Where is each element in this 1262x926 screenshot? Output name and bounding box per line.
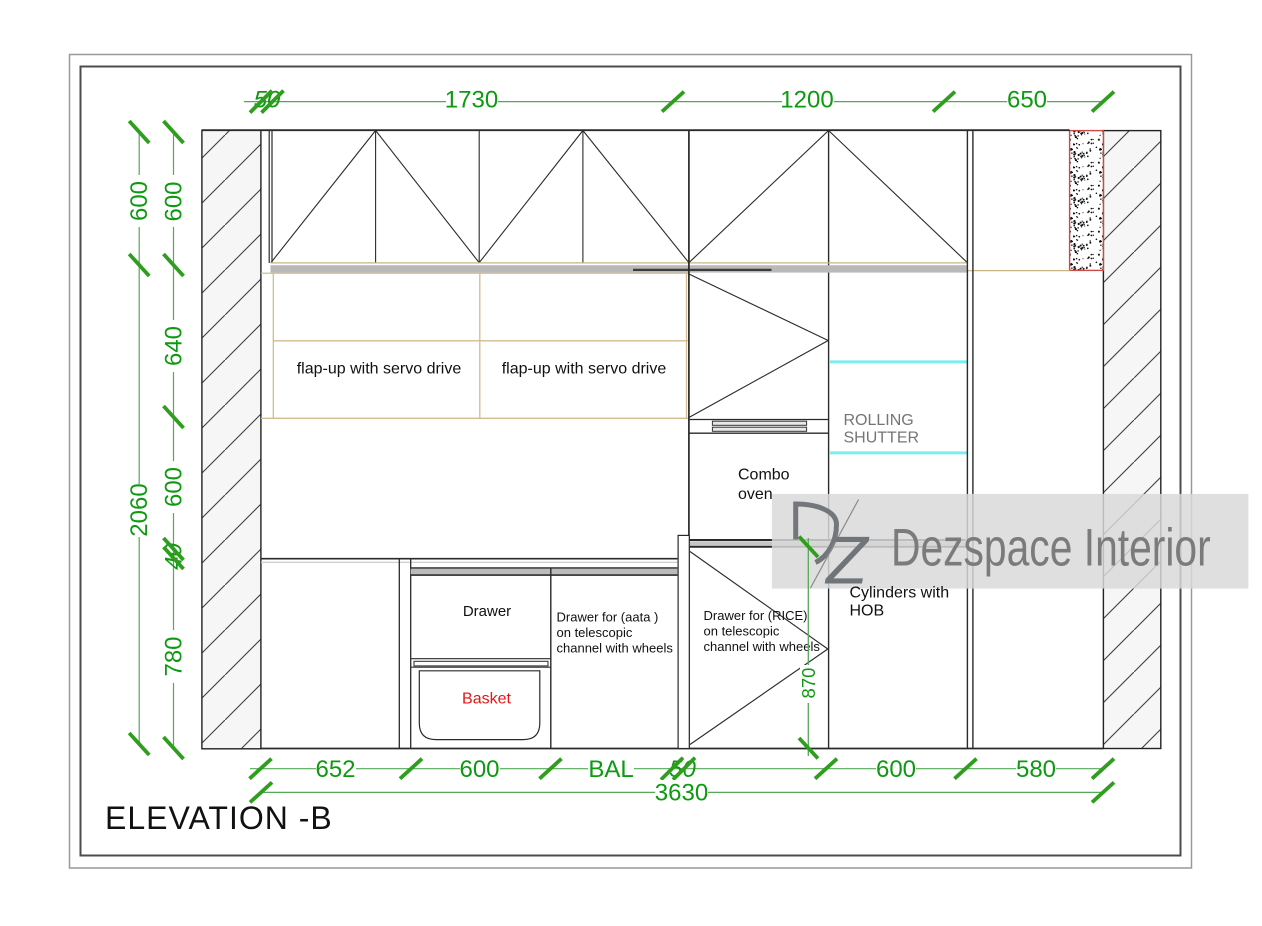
svg-text:Drawer for (RICE): Drawer for (RICE): [704, 608, 808, 623]
svg-text:Dezspace Interior: Dezspace Interior: [891, 518, 1211, 577]
svg-text:Basket: Basket: [462, 691, 511, 708]
svg-text:on telescopic: on telescopic: [557, 625, 633, 640]
svg-text:Drawer: Drawer: [463, 603, 511, 620]
svg-text:600: 600: [161, 467, 188, 507]
svg-text:HOB: HOB: [850, 603, 885, 620]
svg-text:600: 600: [126, 181, 153, 221]
svg-text:652: 652: [315, 756, 355, 783]
svg-text:flap-up with servo drive: flap-up with servo drive: [297, 361, 462, 378]
svg-text:ELEVATION -B: ELEVATION -B: [105, 800, 333, 836]
svg-text:870: 870: [798, 668, 819, 699]
svg-text:780: 780: [161, 636, 188, 676]
svg-text:600: 600: [459, 756, 499, 783]
svg-text:SHUTTER: SHUTTER: [844, 430, 920, 447]
svg-text:1200: 1200: [780, 87, 833, 114]
svg-text:600: 600: [876, 756, 916, 783]
svg-text:Combo: Combo: [738, 467, 790, 484]
svg-text:flap-up with servo drive: flap-up with servo drive: [502, 361, 667, 378]
svg-text:580: 580: [1016, 756, 1056, 783]
svg-text:on telescopic: on telescopic: [704, 624, 780, 639]
svg-text:BAL: BAL: [588, 756, 633, 783]
svg-text:Cylinders with: Cylinders with: [850, 585, 950, 602]
svg-text:oven: oven: [738, 486, 773, 503]
svg-text:channel with wheels: channel with wheels: [704, 639, 821, 654]
svg-text:Drawer for (aata ): Drawer for (aata ): [557, 610, 659, 625]
svg-text:640: 640: [161, 326, 188, 366]
svg-text:1730: 1730: [445, 87, 498, 114]
svg-text:ROLLING: ROLLING: [844, 412, 914, 429]
svg-text:650: 650: [1007, 87, 1047, 114]
svg-text:channel with wheels: channel with wheels: [557, 641, 674, 656]
svg-text:3630: 3630: [655, 780, 708, 807]
svg-text:600: 600: [161, 181, 188, 221]
svg-text:2060: 2060: [126, 483, 153, 536]
